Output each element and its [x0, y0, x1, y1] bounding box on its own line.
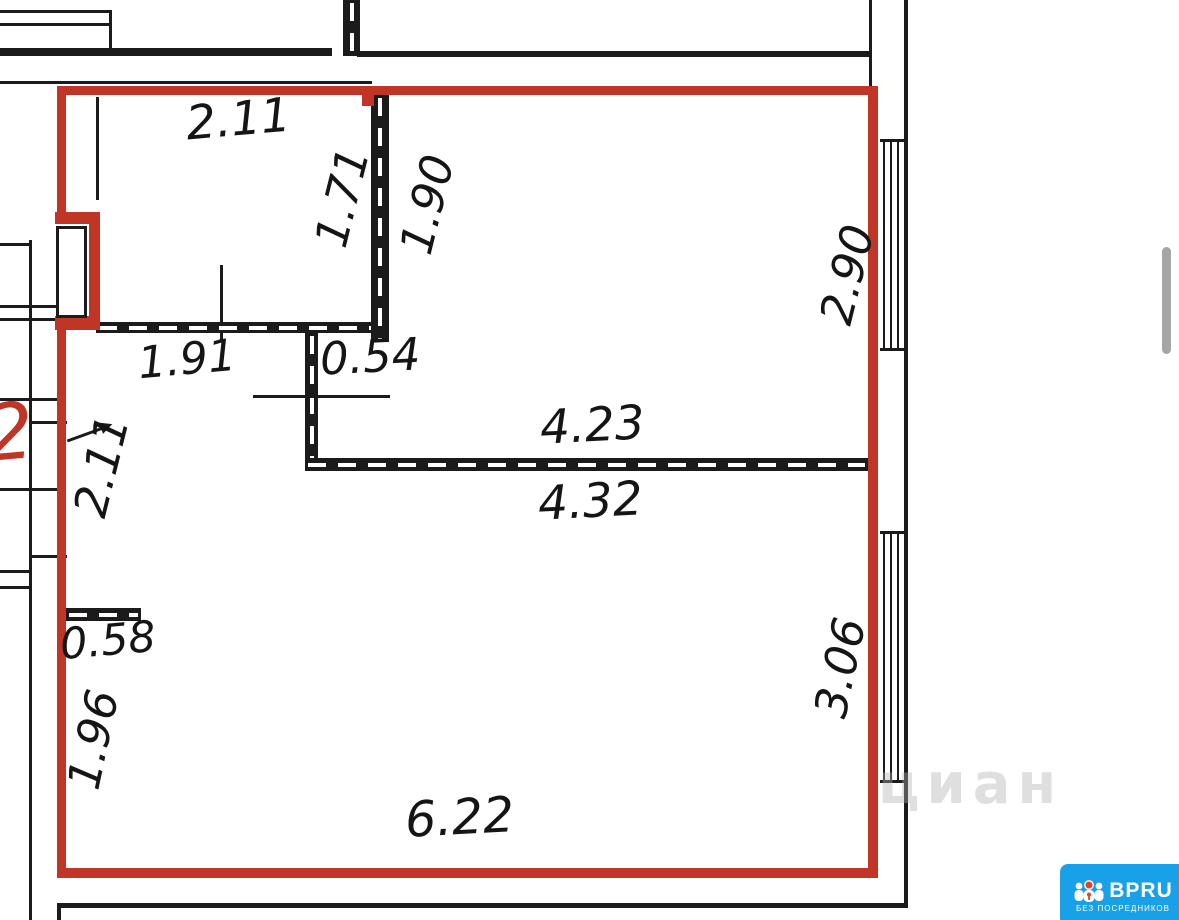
neighbor-stub-7	[0, 586, 31, 589]
bpru-logo-badge: BPRU БЕЗ ПОСРЕДНИКОВ	[1060, 864, 1179, 920]
neighbor-stub-6	[0, 570, 31, 573]
neighbor-stub-5	[0, 488, 58, 491]
dim-label-top-room-width: 2.11	[184, 92, 292, 148]
hall-partition-vertical	[305, 333, 318, 465]
window-symbol-lower	[880, 531, 906, 783]
dim-label-lower-stub: 0.58	[58, 616, 157, 667]
boundary-node	[362, 86, 374, 106]
window-leaf-left	[56, 226, 87, 318]
window-symbol-upper	[880, 139, 906, 351]
outer-wall-bottom	[57, 903, 908, 908]
floor-plan-canvas: 2.11 1.71 1.90 2.90 1.91 0.54 4.23 4.32 …	[0, 0, 1179, 920]
interior-wall-stub-top-room	[96, 97, 99, 200]
dim-label-partition-stub: 0.54	[319, 331, 421, 381]
dim-tick-partition	[253, 395, 390, 398]
dim-label-middle-wall-upper: 4.23	[539, 399, 646, 451]
logo-brand-text: BPRU	[1109, 880, 1173, 901]
dim-label-top-room-bottom-width: 1.91	[136, 334, 237, 386]
dim-label-middle-wall-lower: 4.32	[537, 475, 644, 527]
boundary-window-jamb-top	[55, 212, 100, 224]
watermark-text: циан	[878, 752, 1063, 817]
boundary-window-inner	[89, 224, 100, 318]
neighbor-stub-2	[0, 305, 58, 308]
top-room-right-partition	[371, 95, 389, 342]
outer-wall-above-top-room	[0, 81, 372, 84]
boundary-bottom	[57, 868, 878, 878]
dim-label-top-room-height: 1.71	[308, 143, 376, 251]
neighbor-wall-top-left-a	[0, 10, 112, 13]
neighbor-wall-top-right	[357, 51, 871, 57]
logo-tagline-text: БЕЗ ПОСРЕДНИКОВ	[1076, 905, 1170, 913]
neighbor-partition-top	[343, 0, 360, 56]
boundary-window-jamb-bottom	[55, 316, 100, 330]
middle-partition-wall	[305, 458, 868, 471]
neighbor-wall-top-left-b	[0, 23, 112, 26]
people-icon	[1073, 880, 1105, 902]
dim-label-bottom-width: 6.22	[404, 790, 516, 845]
boundary-left-upper	[57, 86, 66, 217]
neighbor-stub-1	[0, 243, 31, 246]
neighbor-stub-3	[0, 318, 58, 321]
neighbor-wall-right-stub	[869, 0, 872, 86]
neighbor-wall-top-thick	[0, 48, 332, 56]
dim-label-lower-right-room-height: 3.06	[808, 614, 873, 721]
neighbor-wall-left-vertical	[29, 240, 32, 920]
boundary-left-lower	[57, 330, 66, 878]
scrollbar-thumb[interactable]	[1162, 247, 1171, 354]
boundary-right	[868, 86, 878, 878]
boundary-top	[57, 86, 878, 95]
dim-label-niche-depth: 1.90	[393, 150, 461, 258]
outer-wall-bottom-left-corner	[57, 903, 61, 920]
dim-label-left-wall-middle: 2.11	[67, 411, 136, 522]
dim-label-left-wall-lower: 1.96	[61, 686, 126, 793]
